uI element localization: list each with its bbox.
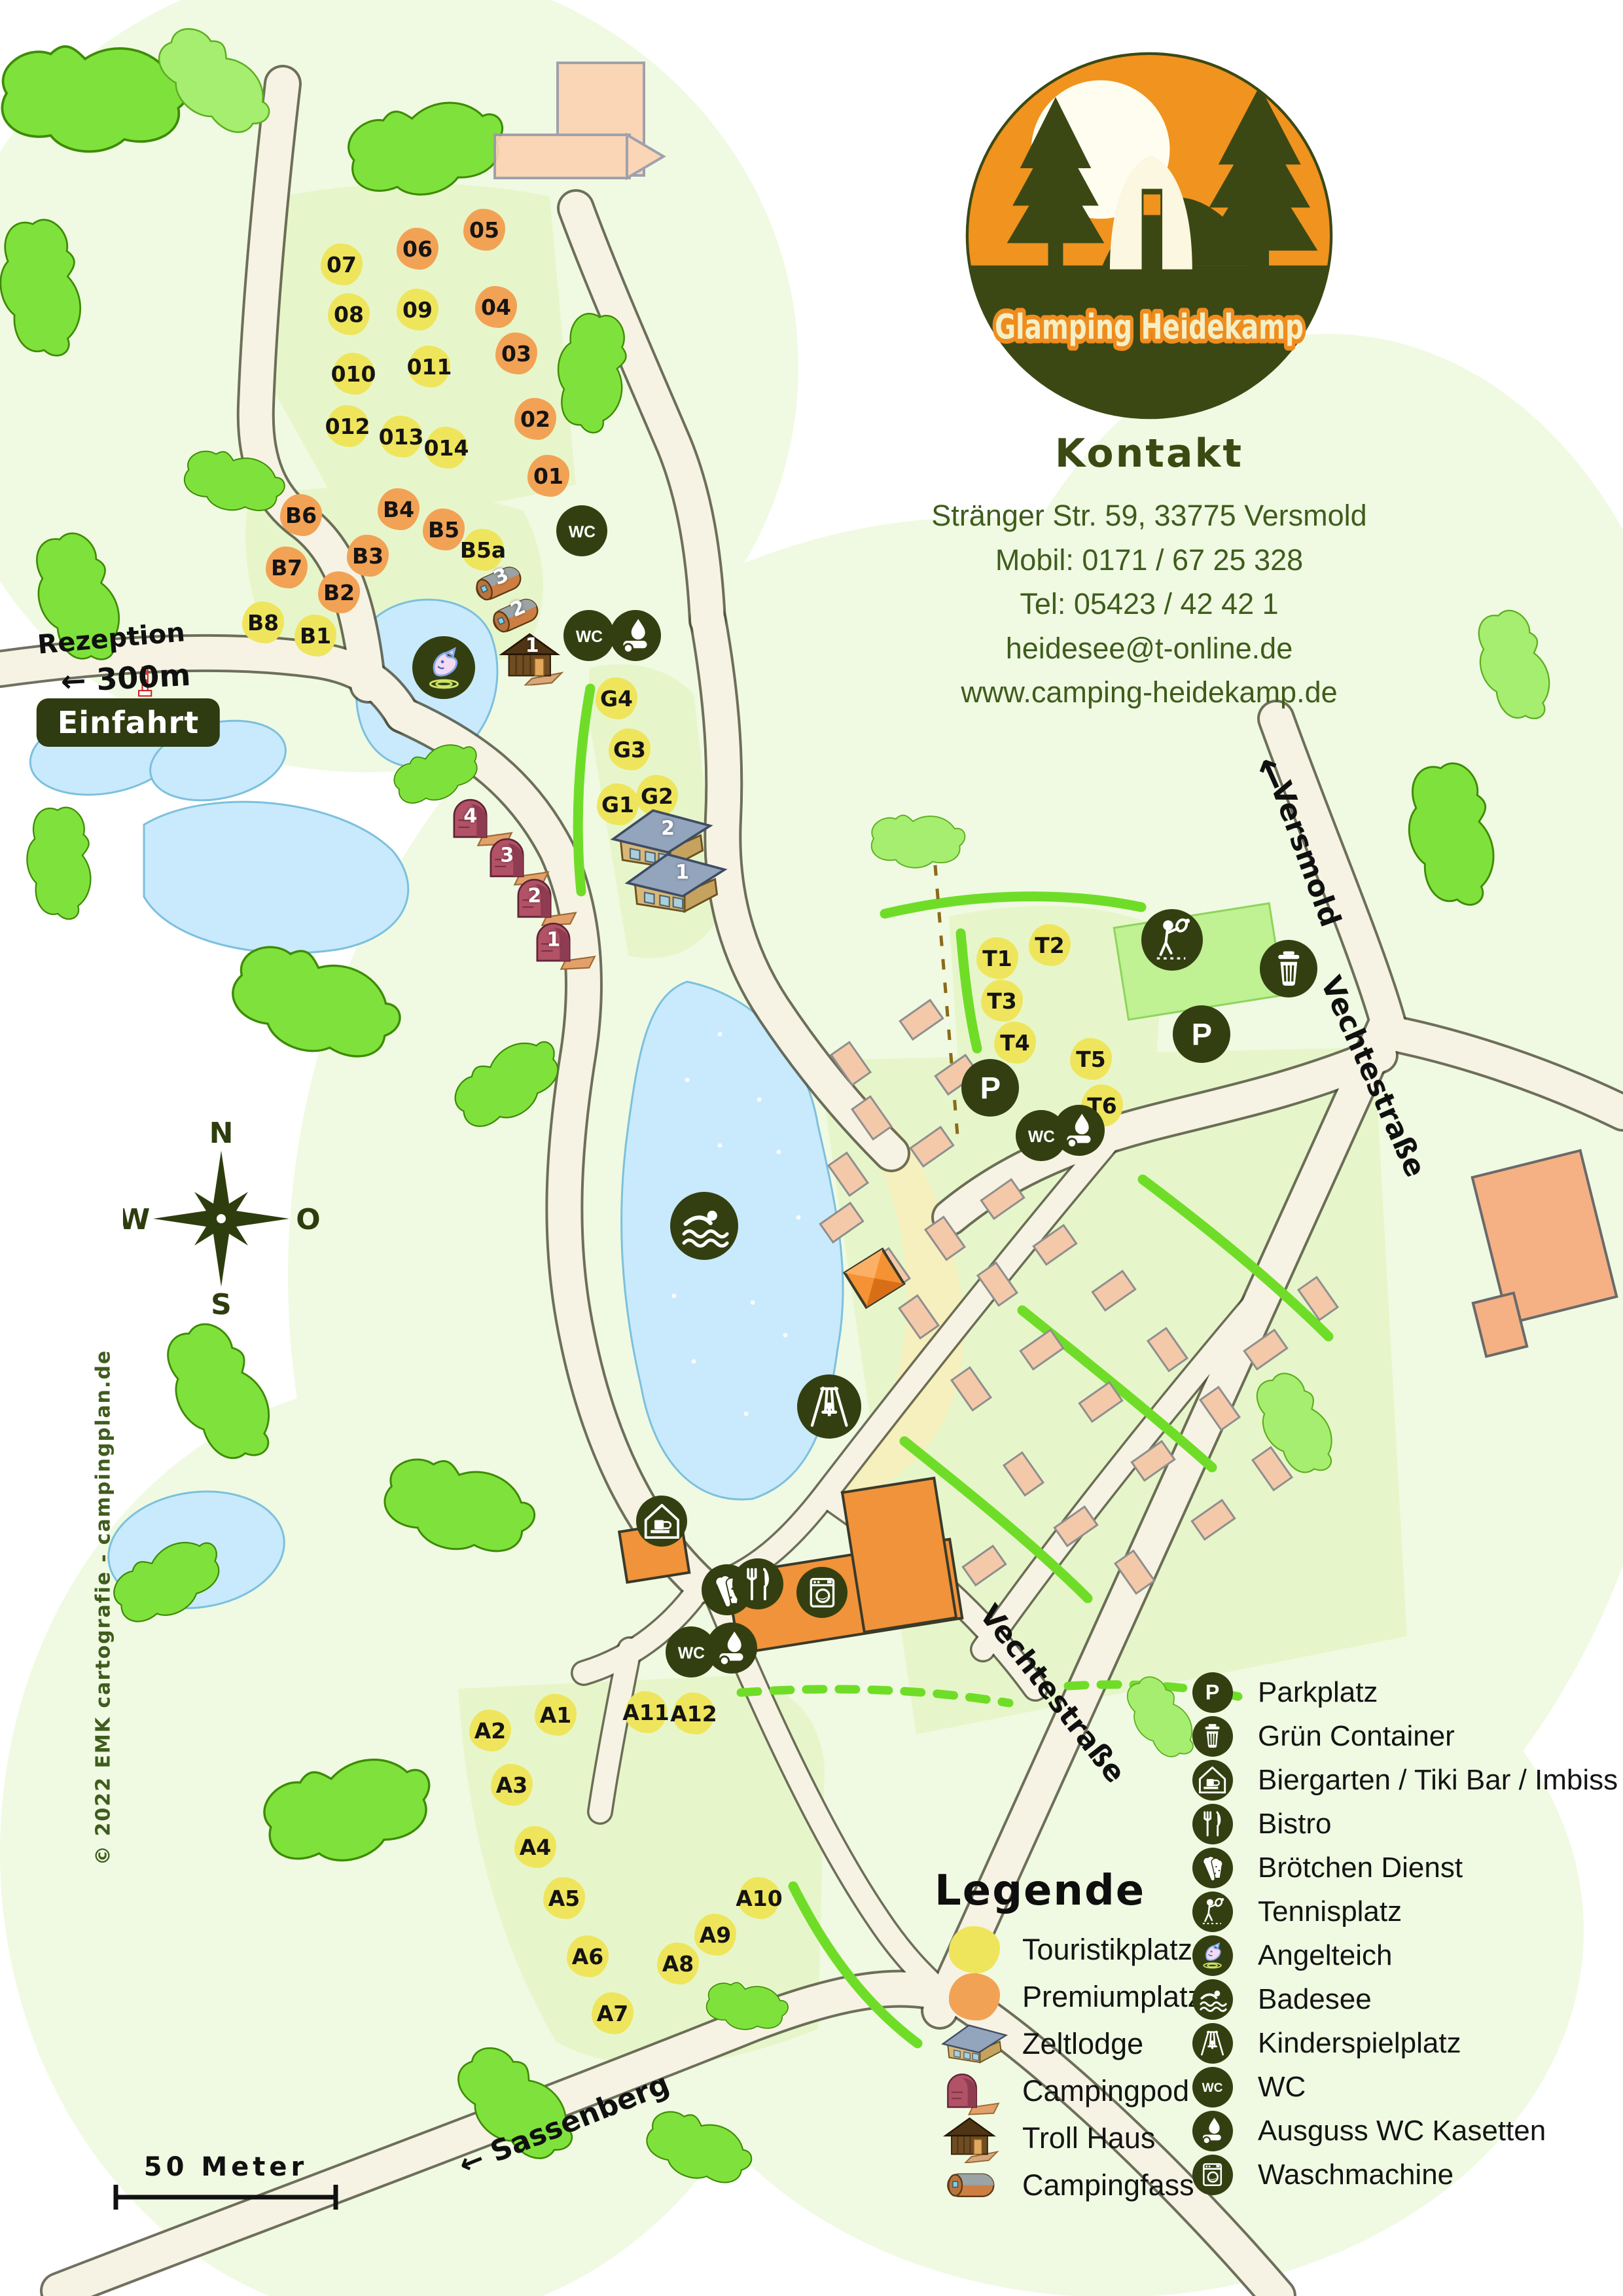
- svg-text:P: P: [980, 1070, 1000, 1105]
- pitch-label: 012: [325, 414, 370, 439]
- icon-legend-label: WC: [1258, 2071, 1306, 2104]
- icon-legend-label: Tennisplatz: [1258, 1895, 1402, 1928]
- pitch-label: A7: [597, 2001, 629, 2026]
- icon-legend-block: PParkplatzGrün ContainerBiergarten / Tik…: [1192, 1670, 1618, 2197]
- wc-icon[interactable]: WC: [556, 505, 607, 556]
- ausguss-icon[interactable]: [610, 610, 661, 661]
- pitch-label: T4: [1000, 1030, 1029, 1056]
- pitch-label: 05: [469, 217, 499, 243]
- pitch-B5[interactable]: B5: [423, 509, 465, 550]
- icon-legend-item-wc: WCWC: [1192, 2065, 1618, 2109]
- svg-text:P: P: [1191, 1016, 1211, 1051]
- touristik-blob: [949, 1926, 1000, 1973]
- contact-lines: Stränger Str. 59, 33775 VersmoldMobil: 0…: [931, 493, 1366, 715]
- gruen-icon: [1192, 1716, 1233, 1757]
- pitch-B3[interactable]: B3: [347, 535, 389, 577]
- scale-bar: 50 Meter: [108, 2152, 344, 2215]
- pitch-B7[interactable]: B7: [266, 547, 308, 588]
- pitch-T5[interactable]: T5: [1070, 1038, 1112, 1080]
- pitch-T1[interactable]: T1: [976, 937, 1018, 979]
- pitch-A7[interactable]: A7: [592, 1992, 633, 2034]
- pitch-A4[interactable]: A4: [514, 1826, 556, 1868]
- icon-legend-item-parkplatz: PParkplatz: [1192, 1670, 1618, 1714]
- campingpod-swatch: [935, 2066, 1014, 2116]
- pitch-T3[interactable]: T3: [981, 980, 1023, 1022]
- campingpod-1[interactable]: 1: [529, 914, 606, 971]
- icon-legend-item-spielplatz: Kinderspielplatz: [1192, 2021, 1618, 2065]
- structure-number: 2: [527, 885, 541, 908]
- icon-legend-item-badesee: Badesee: [1192, 1977, 1618, 2021]
- parkplatz-icon[interactable]: P: [961, 1059, 1019, 1117]
- wasch-icon[interactable]: [796, 1567, 847, 1618]
- pitch-label: 010: [331, 361, 376, 387]
- parkplatz-icon: P: [1192, 1672, 1233, 1713]
- pitch-A8[interactable]: A8: [657, 1943, 699, 1984]
- pitch-label: B7: [271, 555, 302, 581]
- pitch-label: 04: [481, 295, 511, 320]
- pitch-label: 014: [424, 435, 469, 461]
- angelteich-icon[interactable]: [412, 636, 475, 699]
- pitch-label: A8: [662, 1951, 694, 1977]
- pitch-label: T3: [987, 988, 1016, 1014]
- pitch-label: A1: [540, 1702, 572, 1728]
- bistro-icon[interactable]: [732, 1558, 783, 1609]
- scale-line: [108, 2182, 344, 2212]
- pitch-label: 02: [520, 406, 550, 432]
- pitch-label: 01: [533, 463, 563, 489]
- pitch-label: A12: [670, 1701, 717, 1727]
- structure-number: 1: [546, 929, 560, 952]
- pitch-label: 06: [402, 236, 433, 262]
- pitch-T2[interactable]: T2: [1029, 924, 1071, 966]
- zeltlodge-1[interactable]: 1: [624, 845, 728, 921]
- pitch-label: B8: [247, 610, 279, 636]
- icon-legend-label: Parkplatz: [1258, 1676, 1378, 1709]
- trollhaus-swatch: [935, 2113, 1014, 2163]
- contact-heading: Kontakt: [931, 431, 1366, 476]
- pitch-B4[interactable]: B4: [378, 488, 419, 530]
- parkplatz-icon[interactable]: P: [1173, 1005, 1230, 1063]
- icon-legend-label: Angelteich: [1258, 1939, 1392, 1972]
- structure-number: 1: [526, 634, 539, 657]
- legend-block: Legende TouristikplatzPremiumplatzZeltlo…: [935, 1867, 1202, 2211]
- campingfass-swatch: [935, 2161, 1014, 2210]
- pitch-05[interactable]: 05: [463, 209, 505, 251]
- pitch-01[interactable]: 01: [527, 455, 569, 497]
- legend-item-label: Zeltlodge: [1022, 2027, 1143, 2061]
- contact-line: Tel: 05423 / 42 42 1: [931, 582, 1366, 626]
- pitch-label: 013: [379, 424, 424, 450]
- pitch-012[interactable]: 012: [327, 405, 368, 447]
- contact-line: www.camping-heidekamp.de: [931, 670, 1366, 715]
- svg-text:P: P: [1205, 1681, 1220, 1704]
- copyright-note: © 2022 EMK cartografie - campingplan.de: [92, 1446, 115, 1865]
- legend-item-label: Touristikplatz: [1022, 1933, 1192, 1967]
- icon-legend-item-ausguss: Ausguss WC Kasetten: [1192, 2109, 1618, 2153]
- biergarten-icon: [1192, 1760, 1233, 1801]
- broetchen-icon: [1192, 1848, 1233, 1888]
- compass-s: S: [211, 1288, 232, 1317]
- pitch-B6[interactable]: B6: [280, 494, 322, 536]
- legend-item-touristik: Touristikplatz: [935, 1928, 1202, 1971]
- pitch-label: A10: [736, 1886, 782, 1911]
- svg-text:WC: WC: [568, 523, 595, 541]
- bistro-icon: [1192, 1804, 1233, 1844]
- spielplatz-icon: [1192, 2023, 1233, 2064]
- gruen-icon[interactable]: [1260, 940, 1317, 997]
- pitch-B1[interactable]: B1: [294, 615, 336, 656]
- legend-item-campingfass: Campingfass: [935, 2164, 1202, 2207]
- badesee-icon: [1192, 1979, 1233, 2020]
- svg-text:WC: WC: [1202, 2081, 1223, 2095]
- pitch-011[interactable]: 011: [408, 346, 450, 387]
- pitch-label: B1: [300, 623, 331, 649]
- campground-map-page: 050607040908030100110201201301401B6B4B5B…: [0, 0, 1623, 2296]
- legend-item-trollhaus: Troll Haus: [935, 2117, 1202, 2160]
- icon-legend-label: Biergarten / Tiki Bar / Imbiss: [1258, 1764, 1618, 1797]
- pitch-label: B4: [383, 497, 414, 522]
- icon-legend-item-bistro: Bistro: [1192, 1802, 1618, 1846]
- ausguss-icon[interactable]: [706, 1623, 757, 1674]
- compass-w: W: [123, 1203, 150, 1236]
- legend-item-campingpod: Campingpod: [935, 2070, 1202, 2113]
- logo-title: Glamping Heidekamp: [995, 307, 1304, 347]
- premium-blob: [949, 1973, 1000, 2020]
- pitch-A6[interactable]: A6: [567, 1935, 609, 1977]
- pitch-label: B6: [285, 503, 317, 528]
- pitch-label: A4: [520, 1835, 552, 1860]
- pitch-014[interactable]: 014: [425, 427, 467, 469]
- angelteich-icon: [1192, 1935, 1233, 1976]
- pitch-label: A9: [700, 1922, 732, 1948]
- pitch-A12[interactable]: A12: [673, 1693, 715, 1734]
- pitch-label: G4: [600, 686, 633, 711]
- icon-legend-item-angelteich: Angelteich: [1192, 1933, 1618, 1977]
- pitch-label: G3: [613, 737, 646, 762]
- legend-item-zeltlodge: Zeltlodge: [935, 2022, 1202, 2066]
- legend-item-label: Premiumplatz: [1022, 1980, 1202, 2014]
- pitch-label: B2: [323, 580, 355, 605]
- icon-legend-label: Ausguss WC Kasetten: [1258, 2115, 1546, 2147]
- pitch-label: A6: [572, 1944, 604, 1969]
- pitch-04[interactable]: 04: [475, 286, 517, 328]
- pitch-02[interactable]: 02: [514, 398, 556, 440]
- structure-number: 4: [463, 805, 477, 828]
- pitch-label: A11: [622, 1700, 669, 1725]
- pitch-A2[interactable]: A2: [469, 1710, 511, 1751]
- icon-legend-label: Brötchen Dienst: [1258, 1852, 1463, 1884]
- pitch-label: B5: [428, 517, 459, 543]
- pitch-010[interactable]: 010: [332, 353, 374, 395]
- ausguss-icon: [1192, 2111, 1233, 2151]
- touristik-swatch: [935, 1926, 1014, 1973]
- scale-label: 50 Meter: [108, 2152, 344, 2182]
- svg-text:WC: WC: [677, 1644, 704, 1662]
- icon-legend-item-gruen: Grün Container: [1192, 1714, 1618, 1758]
- site-logo: Glamping Heidekamp: [962, 48, 1336, 423]
- pitch-label: T1: [982, 946, 1012, 971]
- zeltlodge-swatch: [935, 2019, 1014, 2069]
- pitch-B8[interactable]: B8: [242, 601, 284, 643]
- structure-number: 1: [675, 861, 689, 884]
- svg-text:WC: WC: [575, 628, 602, 645]
- legend-item-label: Campingpod: [1022, 2074, 1189, 2108]
- spielplatz-icon[interactable]: [797, 1374, 861, 1439]
- pitch-G4[interactable]: G4: [596, 677, 637, 719]
- pitch-A3[interactable]: A3: [491, 1764, 533, 1806]
- svg-text:WC: WC: [1027, 1128, 1054, 1145]
- compass-e: O: [296, 1203, 319, 1236]
- pitch-013[interactable]: 013: [380, 416, 422, 457]
- pitch-label: A5: [548, 1886, 580, 1911]
- legend-title: Legende: [935, 1867, 1202, 1915]
- icon-legend-label: Grün Container: [1258, 1720, 1455, 1753]
- pitch-09[interactable]: 09: [397, 289, 438, 331]
- pitch-label: A3: [496, 1772, 528, 1798]
- trollhaus-1[interactable]: 1: [496, 628, 575, 685]
- badesee-icon[interactable]: [670, 1192, 738, 1260]
- pitch-label: 08: [334, 302, 364, 327]
- pitch-A5[interactable]: A5: [543, 1877, 585, 1919]
- pitch-label: B3: [352, 543, 383, 569]
- entrance-badge: Einfahrt: [37, 698, 220, 747]
- ausguss-icon[interactable]: [1054, 1105, 1105, 1156]
- legend-item-label: Campingfass: [1022, 2168, 1194, 2202]
- icon-legend-label: Badesee: [1258, 1983, 1372, 2016]
- pitch-label: 011: [407, 354, 452, 380]
- contact-block: Kontakt Stränger Str. 59, 33775 Versmold…: [931, 431, 1366, 715]
- tennis-icon[interactable]: [1141, 909, 1203, 971]
- wasch-icon: [1192, 2155, 1233, 2195]
- pitch-label: 03: [501, 341, 531, 367]
- legend-item-premium: Premiumplatz: [935, 1975, 1202, 2018]
- pitch-A9[interactable]: A9: [694, 1914, 736, 1956]
- icon-legend-item-wasch: Waschmachine: [1192, 2153, 1618, 2197]
- biergarten-icon[interactable]: [636, 1496, 687, 1547]
- premium-swatch: [935, 1973, 1014, 2020]
- pitch-label: A2: [474, 1718, 507, 1744]
- pitch-T4[interactable]: T4: [994, 1022, 1036, 1064]
- compass-n: N: [209, 1121, 234, 1150]
- pitch-label: T5: [1076, 1047, 1105, 1072]
- pitch-03[interactable]: 03: [495, 332, 537, 374]
- compass-rose: N O S W: [123, 1121, 319, 1317]
- tennis-icon: [1192, 1892, 1233, 1932]
- structure-number: 3: [500, 844, 514, 867]
- icon-legend-label: Kinderspielplatz: [1258, 2027, 1461, 2060]
- pitch-label: 07: [327, 252, 357, 278]
- wc-icon: WC: [1192, 2067, 1233, 2108]
- contact-line: heidesee@t-online.de: [931, 626, 1366, 671]
- pitch-A11[interactable]: A11: [625, 1691, 667, 1733]
- pitch-label: T2: [1035, 933, 1064, 958]
- icon-legend-label: Bistro: [1258, 1808, 1331, 1840]
- pitch-A10[interactable]: A10: [738, 1877, 780, 1919]
- pitch-07[interactable]: 07: [321, 243, 363, 285]
- pitch-G3[interactable]: G3: [609, 728, 651, 770]
- icon-legend-item-broetchen: Brötchen Dienst: [1192, 1846, 1618, 1890]
- contact-line: Stränger Str. 59, 33775 Versmold: [931, 493, 1366, 538]
- pitch-A1[interactable]: A1: [535, 1694, 577, 1736]
- icon-legend-label: Waschmachine: [1258, 2159, 1454, 2191]
- pitch-06[interactable]: 06: [397, 228, 438, 270]
- structure-number: 2: [661, 817, 675, 840]
- legend-item-label: Troll Haus: [1022, 2121, 1155, 2155]
- pitch-B2[interactable]: B2: [318, 571, 360, 613]
- pitch-08[interactable]: 08: [328, 293, 370, 335]
- contact-line: Mobil: 0171 / 67 25 328: [931, 538, 1366, 583]
- icon-legend-item-biergarten: Biergarten / Tiki Bar / Imbiss: [1192, 1758, 1618, 1802]
- street-label: ← 300m: [60, 657, 191, 699]
- legend-rows: TouristikplatzPremiumplatzZeltlodgeCampi…: [935, 1928, 1202, 2207]
- icon-legend-item-tennis: Tennisplatz: [1192, 1890, 1618, 1933]
- pitch-label: 09: [402, 297, 433, 323]
